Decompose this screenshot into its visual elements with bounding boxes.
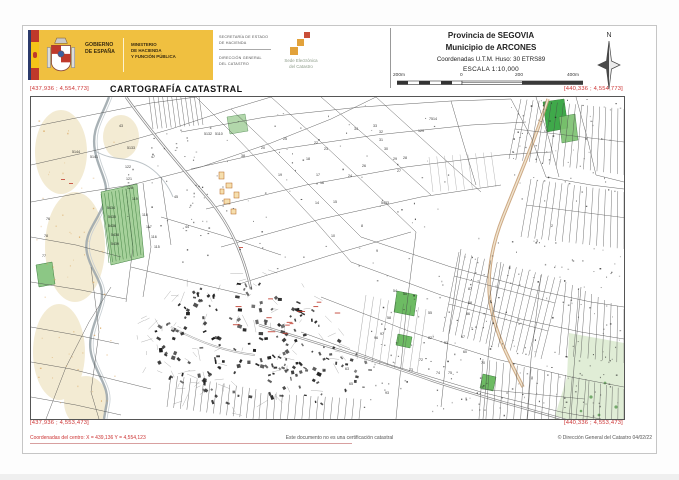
svg-text:54: 54 <box>393 289 397 293</box>
svg-text:7514: 7514 <box>429 117 437 121</box>
corner-coord-top-right: [440,336 ; 4,554,773] <box>564 86 623 92</box>
svg-text:63: 63 <box>345 367 349 371</box>
cadastral-map-document: GOBIERNODE ESPAÑA MINISTERIO DE HACIENDA… <box>0 0 679 480</box>
scale-bar-graphic <box>397 80 583 86</box>
svg-text:28: 28 <box>403 156 407 160</box>
north-arrow-icon: N <box>596 29 622 91</box>
svg-text:75: 75 <box>448 371 452 375</box>
svg-text:26: 26 <box>362 164 366 168</box>
svg-text:122: 122 <box>125 165 131 169</box>
svg-text:17: 17 <box>316 173 320 177</box>
svg-text:72: 72 <box>419 358 423 362</box>
svg-text:60: 60 <box>463 350 467 354</box>
svg-text:115: 115 <box>154 245 160 249</box>
svg-text:8: 8 <box>361 224 363 228</box>
north-label: N <box>606 32 611 39</box>
direccion-label: DIRECCIÓN GENERALDEL CATASTRO <box>219 56 262 67</box>
svg-text:76: 76 <box>46 217 50 221</box>
svg-text:70: 70 <box>481 361 485 365</box>
svg-text:82: 82 <box>428 336 432 340</box>
svg-text:22: 22 <box>314 141 318 145</box>
sede-label: Sede Electrónicadel Catastro <box>275 58 327 70</box>
page-title: CARTOGRAFÍA CATASTRAL <box>110 84 243 94</box>
svg-text:119: 119 <box>132 197 138 201</box>
svg-text:121: 121 <box>126 177 132 181</box>
svg-text:78: 78 <box>44 234 48 238</box>
secretaria-label: SECRETARÍA DE ESTADODE HACIENDA <box>219 35 271 50</box>
svg-text:67: 67 <box>461 335 465 339</box>
svg-text:3: 3 <box>536 239 538 243</box>
svg-text:27: 27 <box>397 169 401 173</box>
svg-text:9: 9 <box>376 249 378 253</box>
svg-text:14: 14 <box>315 201 319 205</box>
svg-text:88: 88 <box>468 301 472 305</box>
scale-bar: 200m 0 200 400m <box>397 73 583 87</box>
corner-coord-bottom-left: [437,936 ; 4,553,473] <box>30 420 89 426</box>
hamlet-buildings <box>219 172 239 214</box>
svg-text:32: 32 <box>379 130 383 134</box>
corner-coord-top-left: [437,936 ; 4,554,773] <box>30 86 89 92</box>
svg-text:73: 73 <box>409 368 413 372</box>
spain-flag-icon <box>31 30 39 80</box>
svg-text:65: 65 <box>349 382 353 386</box>
svg-text:87: 87 <box>468 287 472 291</box>
svg-text:5132: 5132 <box>204 132 212 136</box>
svg-text:47: 47 <box>151 155 155 159</box>
scale-label-mid: 200 <box>515 73 523 78</box>
svg-text:23: 23 <box>324 147 328 151</box>
svg-text:5435: 5435 <box>108 215 116 219</box>
footer-rule <box>30 443 352 444</box>
svg-text:45: 45 <box>174 195 178 199</box>
cadastral-map-svg: 5434543554365438543912212112811911811711… <box>31 97 624 419</box>
sede-electronica-logo: Sede Electrónicadel Catastro <box>275 32 327 70</box>
catastro-header-block: SECRETARÍA DE ESTADODE HACIENDA DIRECCIÓ… <box>213 30 330 82</box>
sede-stairs-icon <box>290 32 312 56</box>
government-logo: GOBIERNODE ESPAÑA MINISTERIO DE HACIENDA… <box>28 30 213 80</box>
svg-text:50: 50 <box>403 292 407 296</box>
svg-text:117: 117 <box>146 225 152 229</box>
svg-text:10: 10 <box>331 234 335 238</box>
svg-text:5144: 5144 <box>72 150 80 154</box>
svg-text:2: 2 <box>551 224 553 228</box>
svg-text:30: 30 <box>384 147 388 151</box>
svg-text:25: 25 <box>283 137 287 141</box>
svg-text:24: 24 <box>348 174 352 178</box>
svg-text:86: 86 <box>466 312 470 316</box>
svg-text:31: 31 <box>379 138 383 142</box>
coat-of-arms-icon <box>44 37 78 75</box>
scale-label-zero: 0 <box>460 73 463 78</box>
svg-text:55: 55 <box>428 311 432 315</box>
svg-text:5438: 5438 <box>111 233 119 237</box>
utm-label: Coordenadas U.T.M. Huso: 30 ETRS89 <box>391 56 591 63</box>
corner-coord-bottom-right: [440,336 ; 4,553,473] <box>564 420 623 426</box>
svg-text:51: 51 <box>444 341 448 345</box>
svg-text:29: 29 <box>393 157 397 161</box>
svg-text:16: 16 <box>320 181 324 185</box>
svg-text:77: 77 <box>42 254 46 258</box>
svg-text:118: 118 <box>142 213 148 217</box>
svg-text:97: 97 <box>380 332 384 336</box>
svg-text:5433: 5433 <box>381 201 389 205</box>
svg-text:38: 38 <box>241 154 245 158</box>
svg-text:5133: 5133 <box>127 146 135 150</box>
svg-text:5141: 5141 <box>90 155 98 159</box>
ministerio-label: MINISTERIO DE HACIENDA Y FUNCIÓN PÚBLICA <box>131 42 176 60</box>
svg-text:93: 93 <box>385 391 389 395</box>
svg-text:20: 20 <box>261 146 265 150</box>
svg-text:74: 74 <box>436 371 440 375</box>
svg-text:43: 43 <box>119 124 123 128</box>
svg-text:34: 34 <box>354 127 358 131</box>
svg-text:58: 58 <box>387 316 391 320</box>
footer-copyright: © Dirección General del Catastro 04/02/2… <box>558 435 652 441</box>
municipio-label: Municipio de ARCONES <box>391 43 591 52</box>
escala-label: ESCALA 1:10,000 <box>391 66 591 73</box>
green-zone <box>554 333 624 419</box>
gobierno-label: GOBIERNODE ESPAÑA <box>85 42 115 56</box>
svg-text:5439: 5439 <box>111 242 119 246</box>
svg-text:15: 15 <box>333 200 337 204</box>
svg-text:128: 128 <box>127 186 133 190</box>
svg-text:96: 96 <box>374 336 378 340</box>
svg-text:18: 18 <box>306 157 310 161</box>
logo-divider <box>123 38 124 72</box>
svg-text:116: 116 <box>151 235 157 239</box>
svg-text:129: 129 <box>418 129 424 133</box>
scale-label-left: 200m <box>393 73 405 78</box>
cadastral-map: 5434543554365438543912212112811911811711… <box>30 96 625 420</box>
svg-text:19: 19 <box>278 173 282 177</box>
svg-text:33: 33 <box>373 124 377 128</box>
svg-text:5110: 5110 <box>215 132 223 136</box>
svg-text:5436: 5436 <box>108 224 116 228</box>
scan-smudge <box>0 474 679 480</box>
svg-text:44: 44 <box>185 225 189 229</box>
svg-text:5434: 5434 <box>107 206 115 210</box>
scale-label-right: 400m <box>567 73 579 78</box>
provincia-label: Provincia de SEGOVIA <box>391 31 591 40</box>
